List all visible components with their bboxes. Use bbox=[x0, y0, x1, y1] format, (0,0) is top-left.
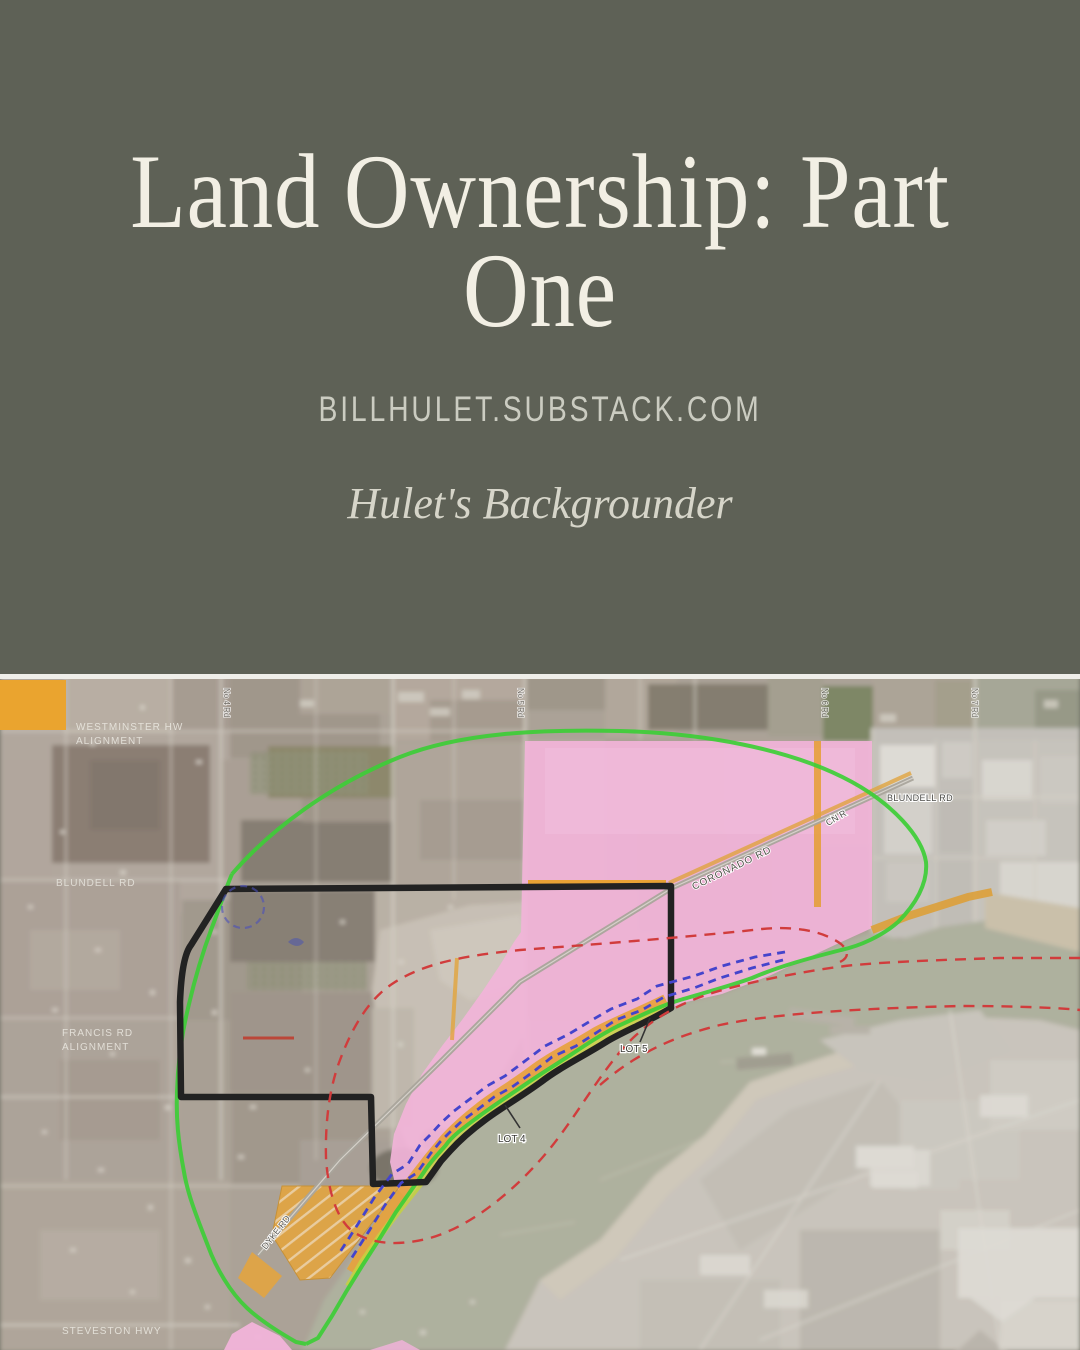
svg-text:ALIGNMENT: ALIGNMENT bbox=[76, 736, 143, 747]
svg-text:BLUNDELL RD: BLUNDELL RD bbox=[887, 793, 953, 803]
svg-text:STEVESTON HWY: STEVESTON HWY bbox=[62, 1326, 162, 1337]
svg-text:LOT 5: LOT 5 bbox=[620, 1044, 648, 1055]
svg-text:ALIGNMENT: ALIGNMENT bbox=[62, 1042, 129, 1053]
svg-text:FRANCIS RD: FRANCIS RD bbox=[62, 1028, 133, 1039]
svg-text:WESTMINSTER HW: WESTMINSTER HW bbox=[76, 722, 183, 733]
svg-text:LOT 4: LOT 4 bbox=[498, 1134, 526, 1145]
svg-text:No 6 Rd: No 6 Rd bbox=[820, 688, 829, 717]
svg-text:No 5 Rd: No 5 Rd bbox=[516, 688, 525, 717]
svg-text:No 4 Rd: No 4 Rd bbox=[222, 688, 231, 717]
svg-text:BLUNDELL RD: BLUNDELL RD bbox=[56, 878, 136, 889]
svg-text:No 7 Rd: No 7 Rd bbox=[970, 688, 979, 717]
